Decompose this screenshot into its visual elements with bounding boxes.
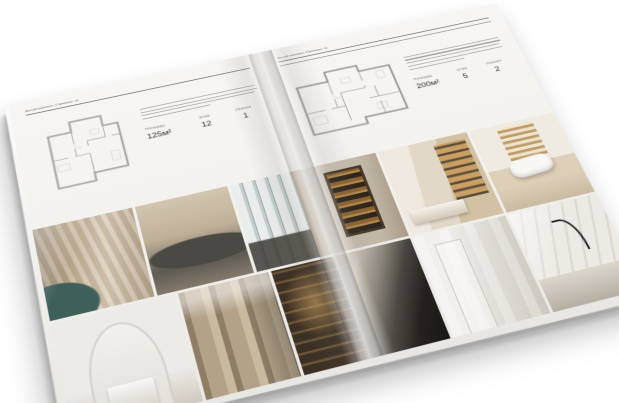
desk-shape [410,199,469,225]
left-stat-bedrooms: Спален 1 [223,102,266,124]
open-brochure: Жилой комплекс «Премьер» 16 [8,3,619,403]
counter-shape [539,257,619,312]
left-floor-plan [27,101,150,216]
door-frame [434,239,498,333]
right-stat-area: Площадь 200м² [413,70,451,90]
faucet-shape [551,216,591,255]
brochure-mockup: Жилой комплекс «Премьер» 16 [22,10,602,400]
cabinet-shelves [322,165,385,238]
right-floor-plan [282,49,426,160]
right-stat-bedrooms: Спален 2 [477,57,515,76]
scene: Жилой комплекс «Премьер» 16 [0,0,619,403]
left-stat-area: Площадь 125м² [145,119,189,141]
left-stat-floor: Этаж 12 [184,111,227,133]
